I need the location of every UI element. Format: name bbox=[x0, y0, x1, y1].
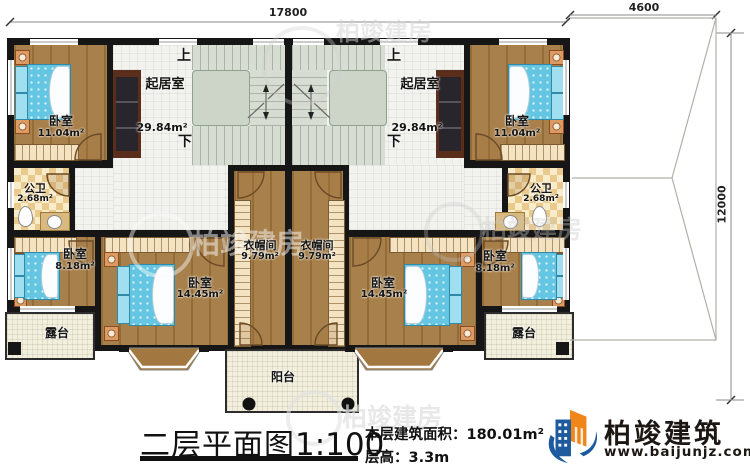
nightstand bbox=[15, 119, 30, 134]
stair-right-bottom-treads bbox=[292, 126, 385, 165]
terrace-left-label: 露台 bbox=[45, 327, 69, 340]
building-area-label: 本层建筑面积： bbox=[365, 427, 467, 443]
window bbox=[253, 39, 284, 45]
nightstand bbox=[15, 50, 30, 65]
window bbox=[563, 182, 569, 208]
floor-height-value: 3.3m bbox=[409, 450, 450, 466]
living-right-area: 29.84m² bbox=[391, 122, 442, 134]
closet-left-area: 9.79m² bbox=[241, 252, 279, 262]
terrace-right-label: 露台 bbox=[512, 327, 536, 340]
bed-headboard bbox=[550, 66, 564, 93]
closet-left-name: 衣帽间 bbox=[244, 240, 277, 252]
window bbox=[30, 39, 78, 45]
bedroom-bl-area: 8.18m² bbox=[55, 262, 94, 273]
bedroom-bl-name: 卧室 bbox=[63, 248, 87, 261]
bedroom-ml-name: 卧室 bbox=[188, 277, 212, 290]
toilet-left bbox=[18, 206, 33, 227]
closet-right-area: 9.79m² bbox=[298, 252, 336, 262]
stair-up-right: 上 bbox=[387, 49, 401, 64]
stair-right-side-treads bbox=[292, 70, 327, 126]
terrace-door-left bbox=[20, 306, 75, 312]
bed-headboard bbox=[448, 266, 462, 295]
bedroom-br-name: 卧室 bbox=[483, 250, 507, 263]
wardrobe-closet-right bbox=[328, 200, 345, 347]
bedroom-tl-name: 卧室 bbox=[49, 115, 73, 128]
toilet-right bbox=[532, 206, 547, 227]
terrace-right-column bbox=[556, 342, 569, 355]
floor-height-label: 层高： bbox=[365, 450, 409, 466]
bedroom-tl-area: 11.04m² bbox=[38, 129, 84, 140]
wardrobe-closet-left bbox=[234, 200, 251, 347]
nightstand bbox=[549, 50, 564, 65]
sofa-cushions bbox=[439, 77, 461, 151]
company-logo-url: www.baijunjz.com bbox=[604, 444, 750, 460]
window bbox=[499, 39, 547, 45]
stair-up-left: 上 bbox=[177, 49, 191, 64]
bedroom-ml-area: 14.45m² bbox=[177, 290, 223, 301]
sink-left bbox=[47, 215, 62, 229]
balcony-label: 阳台 bbox=[271, 371, 295, 384]
bedroom-tr-area: 11.04m² bbox=[494, 129, 540, 140]
dimension-roof-width: 4600 bbox=[629, 1, 660, 14]
window bbox=[380, 39, 418, 45]
living-right-lower-floor bbox=[349, 165, 464, 230]
building-area-value: 180.01m² bbox=[467, 427, 544, 443]
bedroom-mr-name: 卧室 bbox=[371, 277, 395, 290]
wardrobe-bedroom-top-left bbox=[14, 144, 79, 161]
living-left-lower-floor bbox=[113, 165, 228, 230]
nightstand bbox=[104, 252, 119, 267]
sofa-right bbox=[436, 70, 464, 158]
window bbox=[8, 60, 14, 115]
stair-down-right: 下 bbox=[387, 135, 401, 150]
nightstand bbox=[460, 252, 475, 267]
bath-right-name: 公卫 bbox=[530, 183, 552, 195]
wardrobe-bedroom-mid-right bbox=[389, 237, 475, 253]
window bbox=[563, 248, 569, 300]
living-right-name: 起居室 bbox=[400, 78, 439, 92]
terrace-left-column bbox=[8, 342, 21, 355]
sofa-left bbox=[113, 70, 141, 158]
window bbox=[8, 182, 14, 208]
bath-left-name: 公卫 bbox=[24, 183, 46, 195]
stair-left-side-treads bbox=[250, 70, 285, 126]
stair-left-bottom-treads bbox=[192, 126, 285, 165]
bed-duvet bbox=[152, 266, 174, 324]
wardrobe-bedroom-top-right bbox=[500, 144, 565, 161]
living-left-name: 起居室 bbox=[145, 78, 184, 92]
roof-outline bbox=[570, 18, 716, 340]
bedroom-br-area: 8.18m² bbox=[475, 264, 514, 275]
floor-plan-canvas: 17800 4600 12000 bbox=[0, 0, 750, 471]
bed-duvet bbox=[405, 266, 427, 324]
hall-left-floor bbox=[75, 168, 113, 230]
nightstand bbox=[104, 326, 119, 341]
bed-duvet bbox=[509, 66, 530, 118]
bedroom-mr-area: 14.45m² bbox=[361, 290, 407, 301]
dimension-roof-height: 12000 bbox=[716, 185, 729, 223]
bed-headboard bbox=[448, 295, 462, 324]
building-area-line: 本层建筑面积：180.01m² bbox=[365, 423, 544, 444]
window bbox=[8, 248, 14, 300]
bath-left-area: 2.68m² bbox=[17, 195, 53, 204]
sink-right bbox=[503, 215, 518, 229]
floor-height-line: 层高：3.3m bbox=[365, 446, 449, 467]
stair-left-landing bbox=[192, 70, 250, 126]
living-left-area: 29.84m² bbox=[136, 122, 187, 134]
window bbox=[159, 39, 197, 45]
stair-down-left: 下 bbox=[178, 135, 192, 150]
stair-right-top-treads bbox=[292, 45, 385, 70]
bed-duvet bbox=[49, 66, 70, 118]
wardrobe-bedroom-mid-left bbox=[104, 237, 190, 253]
closet-right-name: 衣帽间 bbox=[301, 240, 334, 252]
sofa-cushions bbox=[116, 77, 138, 151]
stair-right-landing bbox=[329, 70, 387, 126]
terrace-door-right bbox=[502, 306, 557, 312]
dimension-top: 17800 bbox=[269, 6, 307, 19]
window bbox=[563, 60, 569, 115]
title-underline bbox=[140, 456, 358, 461]
bed-headboard bbox=[550, 93, 564, 120]
wardrobe-bedroom-bottom-right bbox=[502, 237, 565, 253]
window bbox=[293, 39, 324, 45]
bedroom-tr-name: 卧室 bbox=[505, 115, 529, 128]
bath-right-area: 2.68m² bbox=[523, 195, 559, 204]
bed-duvet bbox=[522, 254, 539, 298]
stair-left-top-treads bbox=[192, 45, 285, 70]
company-logo-icon bbox=[541, 406, 599, 464]
nightstand bbox=[549, 119, 564, 134]
nightstand bbox=[460, 326, 475, 341]
